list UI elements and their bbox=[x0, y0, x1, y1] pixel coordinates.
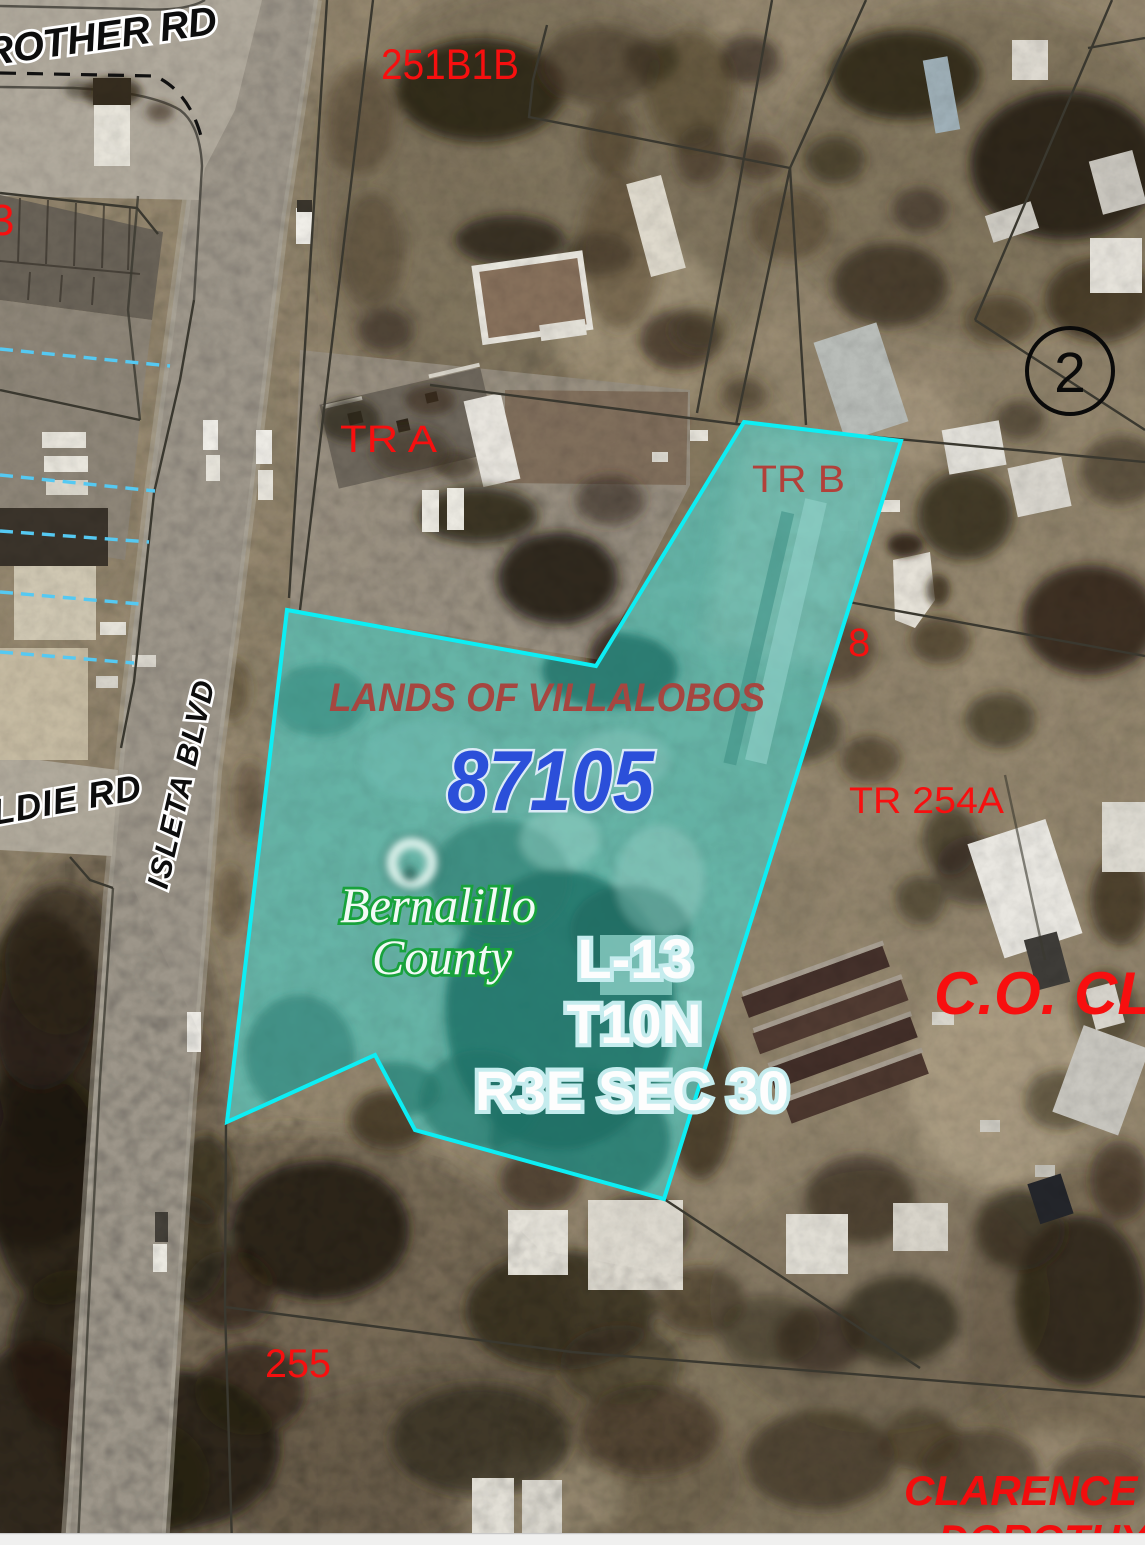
svg-text:2: 2 bbox=[1054, 341, 1086, 405]
svg-text:TR B: TR B bbox=[752, 459, 845, 501]
svg-text:LANDS OF VILLALOBOS: LANDS OF VILLALOBOS bbox=[329, 676, 765, 720]
svg-text:3: 3 bbox=[0, 196, 14, 245]
svg-text:8: 8 bbox=[848, 621, 870, 665]
svg-text:C.O. CLA: C.O. CLA bbox=[934, 960, 1145, 1027]
svg-text:TR A: TR A bbox=[340, 419, 438, 461]
svg-text:R3E SEC 30: R3E SEC 30 bbox=[475, 1059, 789, 1122]
svg-text:255: 255 bbox=[265, 1342, 331, 1386]
svg-text:T10N: T10N bbox=[567, 992, 702, 1055]
svg-text:TR 254A: TR 254A bbox=[849, 780, 1004, 821]
svg-text:L-13: L-13 bbox=[578, 927, 693, 990]
svg-text:251B1B: 251B1B bbox=[381, 41, 519, 89]
svg-text:CLARENCE G: CLARENCE G bbox=[904, 1467, 1145, 1514]
svg-text:County: County bbox=[372, 929, 513, 985]
svg-text:87105: 87105 bbox=[447, 734, 656, 829]
svg-text:Bernalillo: Bernalillo bbox=[340, 877, 536, 933]
